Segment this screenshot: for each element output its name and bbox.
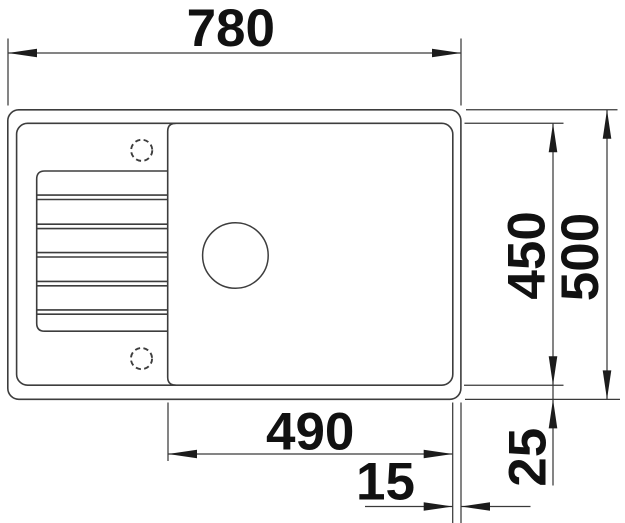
svg-text:450: 450 <box>497 211 556 299</box>
svg-text:15: 15 <box>356 453 415 512</box>
svg-text:490: 490 <box>266 403 354 462</box>
svg-text:780: 780 <box>187 0 275 58</box>
svg-text:500: 500 <box>551 213 610 301</box>
svg-text:25: 25 <box>498 428 557 487</box>
